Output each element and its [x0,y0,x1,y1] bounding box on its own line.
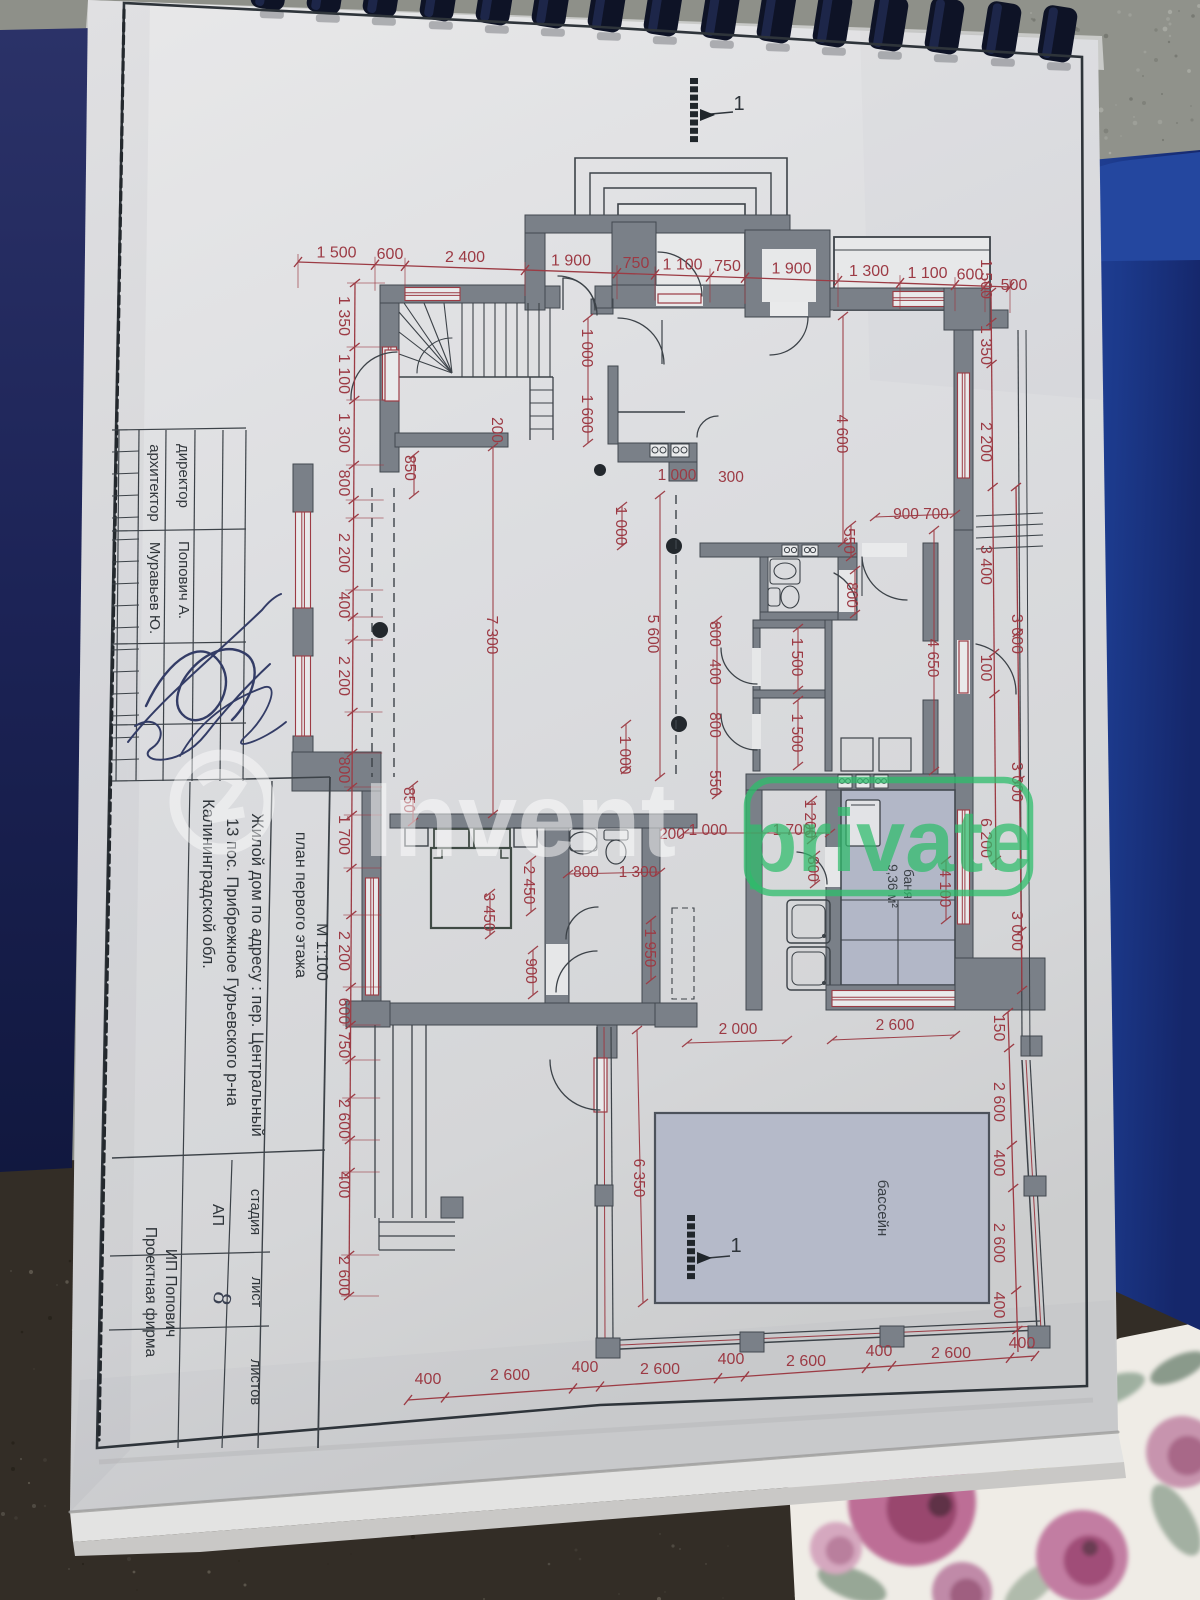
svg-text:200: 200 [488,417,505,443]
svg-text:АП: АП [209,1204,226,1226]
svg-text:100: 100 [977,655,994,682]
svg-text:800: 800 [706,712,723,738]
svg-text:2 600: 2 600 [490,1367,530,1384]
svg-text:Муравьев Ю.: Муравьев Ю. [146,542,163,634]
svg-text:2 600: 2 600 [876,1017,915,1034]
svg-text:1 900: 1 900 [551,253,591,270]
svg-text:листов: листов [247,1359,263,1405]
svg-text:2 200: 2 200 [977,422,994,462]
svg-text:стадия: стадия [247,1189,263,1235]
svg-text:7 300: 7 300 [483,616,500,655]
svg-text:1: 1 [730,1235,741,1257]
svg-text:2 200: 2 200 [335,533,352,573]
svg-text:400: 400 [990,1292,1007,1319]
svg-text:1 300: 1 300 [335,413,352,453]
svg-text:план первого этажа: план первого этажа [292,832,309,978]
svg-text:300: 300 [718,469,744,486]
svg-text:1 500: 1 500 [788,638,805,677]
svg-text:600: 600 [377,246,404,263]
svg-text:М 1:100: М 1:100 [313,923,330,981]
svg-text:2 400: 2 400 [445,249,485,266]
svg-text:private: private [744,791,1033,890]
svg-text:4 600: 4 600 [833,415,850,454]
svg-text:400: 400 [572,1359,599,1376]
svg-text:1 600: 1 600 [578,395,595,434]
svg-text:1 100: 1 100 [907,265,947,282]
svg-text:Попович А.: Попович А. [175,541,192,619]
svg-text:400: 400 [335,1172,352,1199]
svg-text:1 950: 1 950 [641,929,658,968]
svg-text:Invent: Invent [364,761,676,879]
svg-text:1 000: 1 000 [578,329,595,368]
svg-text:800: 800 [335,757,352,784]
svg-text:бассейн: бассейн [874,1180,891,1237]
svg-text:3 450: 3 450 [480,893,497,932]
svg-text:750: 750 [714,258,741,275]
svg-text:900: 900 [893,506,919,523]
svg-text:3 000: 3 000 [1008,911,1025,951]
svg-text:2 600: 2 600 [640,1361,680,1378]
svg-text:1 300: 1 300 [849,263,889,280]
svg-text:750: 750 [335,1032,352,1059]
svg-text:400: 400 [1009,1335,1036,1352]
svg-text:1 350: 1 350 [335,296,352,336]
svg-text:архитектор: архитектор [146,444,163,522]
svg-text:800: 800 [706,621,723,647]
svg-text:2 200: 2 200 [335,931,352,971]
svg-text:2 600: 2 600 [335,1256,352,1296]
svg-text:400: 400 [990,1150,1007,1177]
svg-text:6 350: 6 350 [630,1159,647,1198]
svg-text:1 100: 1 100 [335,354,352,394]
svg-text:2 200: 2 200 [335,656,352,696]
svg-text:3 400: 3 400 [977,545,994,585]
svg-text:2 600: 2 600 [335,1099,352,1139]
svg-text:2 600: 2 600 [990,1082,1007,1122]
svg-text:750: 750 [623,255,650,272]
svg-text:1 000: 1 000 [689,822,728,839]
svg-text:1 500: 1 500 [788,714,805,753]
svg-text:1 350: 1 350 [977,325,994,365]
svg-text:800: 800 [843,582,860,608]
svg-text:900: 900 [522,958,539,984]
svg-text:13 пос. Прибрежное Гурьевского: 13 пос. Прибрежное Гурьевского р-на [223,818,241,1107]
svg-text:Калининградской обл.: Калининградской обл. [199,799,217,969]
svg-text:4 650: 4 650 [924,639,941,678]
svg-text:3 000: 3 000 [1008,614,1025,654]
svg-text:1 000: 1 000 [658,467,697,484]
svg-text:400: 400 [706,659,723,685]
svg-text:500: 500 [1001,277,1028,294]
svg-text:директор: директор [175,444,192,508]
svg-text:1 500: 1 500 [977,259,994,299]
svg-text:600: 600 [335,998,352,1025]
svg-text:Проектная фирма: Проектная фирма [142,1227,159,1358]
svg-text:800: 800 [335,470,352,497]
svg-text:1: 1 [733,93,744,115]
svg-text:150: 150 [990,1015,1007,1042]
svg-text:400: 400 [335,592,352,619]
svg-text:400: 400 [866,1343,893,1360]
svg-text:2 600: 2 600 [931,1345,971,1362]
svg-text:1 700: 1 700 [335,815,352,855]
svg-text:1 500: 1 500 [316,244,356,261]
svg-text:1 000: 1 000 [612,507,629,546]
svg-text:400: 400 [718,1351,745,1368]
svg-text:2 600: 2 600 [786,1353,826,1370]
svg-text:ИП Попович: ИП Попович [162,1249,179,1337]
svg-text:2 000: 2 000 [719,1021,758,1038]
svg-text:5 600: 5 600 [644,615,661,654]
svg-text:1 900: 1 900 [771,260,811,277]
svg-text:400: 400 [415,1371,442,1388]
svg-text:2 600: 2 600 [990,1223,1007,1263]
svg-text:Жилой дом по адресу : пер. Це: Жилой дом по адресу : пер. Центральный [248,813,266,1136]
svg-text:1 100: 1 100 [662,257,702,274]
svg-text:лист: лист [248,1277,264,1308]
